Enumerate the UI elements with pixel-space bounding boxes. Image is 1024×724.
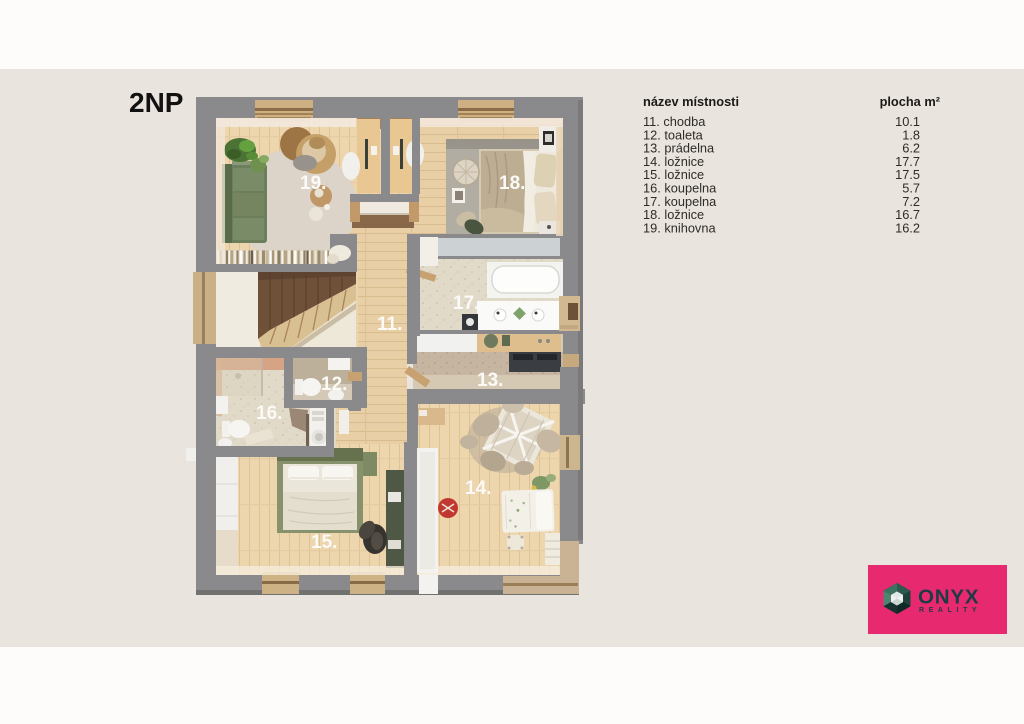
svg-text:15.: 15. — [311, 532, 337, 553]
svg-text:19. knihovna: 19. knihovna — [643, 220, 716, 235]
svg-text:14.: 14. — [465, 478, 491, 499]
svg-text:19.: 19. — [300, 173, 326, 194]
svg-text:13.: 13. — [477, 370, 503, 391]
svg-text:název místnosti: název místnosti — [643, 94, 739, 109]
svg-text:17.: 17. — [453, 293, 479, 314]
svg-text:18.: 18. — [499, 173, 525, 194]
svg-text:16.: 16. — [256, 403, 282, 424]
svg-text:12.: 12. — [321, 374, 347, 395]
svg-text:plocha m²: plocha m² — [880, 94, 940, 109]
svg-text:REALITY: REALITY — [919, 607, 981, 614]
svg-text:16.2: 16.2 — [895, 220, 920, 235]
svg-text:ONYX: ONYX — [918, 586, 979, 609]
svg-text:11.: 11. — [377, 314, 402, 335]
